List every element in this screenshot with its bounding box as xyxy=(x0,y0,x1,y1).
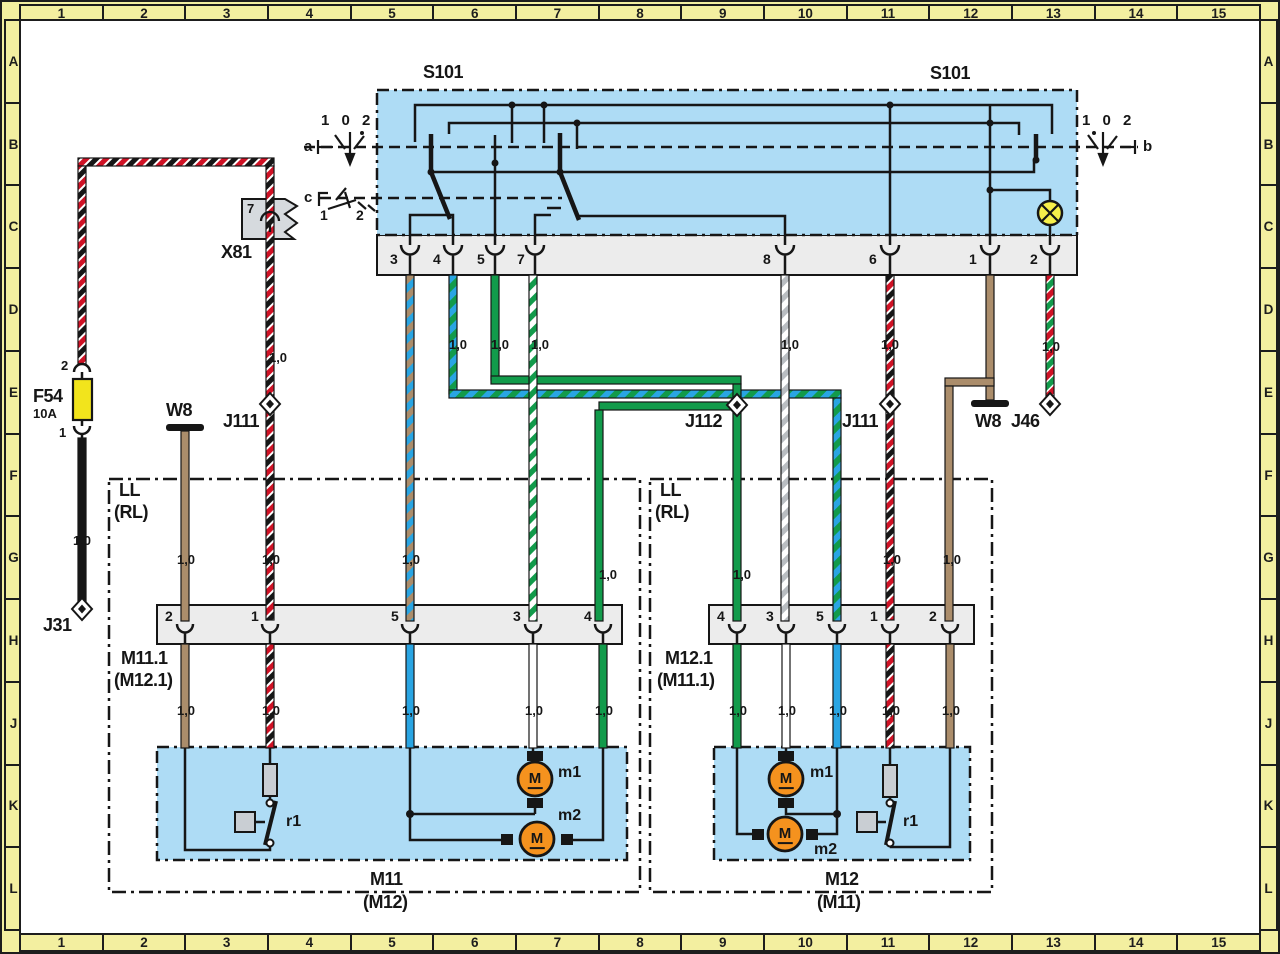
lamp-symbol xyxy=(1038,201,1062,225)
f54-label: F54 xyxy=(33,387,63,405)
right-strip-pin-2: 2 xyxy=(929,609,937,623)
j112-label: J112 xyxy=(685,412,722,430)
m1-left-motor-letter: M xyxy=(528,771,543,789)
w8-left-label: W8 xyxy=(166,401,192,419)
m12-1-label: M12.1 xyxy=(665,649,713,667)
wire-black-j31 xyxy=(78,438,86,602)
m2-right-label: m2 xyxy=(814,842,837,858)
wire-whitegray xyxy=(781,275,789,621)
gauge-label: 1,0 xyxy=(177,704,195,717)
wiring-diagram-page: 123456789101112131415 123456789101112131… xyxy=(0,0,1280,954)
gauge-label: 1,0 xyxy=(882,704,900,717)
m11-1-alt: (M12.1) xyxy=(114,671,173,689)
x81-label: X81 xyxy=(221,243,252,261)
f54-pin-1: 1 xyxy=(59,426,66,439)
gauge-label: 1,0 xyxy=(262,553,280,566)
ll-right-title: LL xyxy=(660,481,681,499)
m1-left-label: m1 xyxy=(558,765,581,781)
switch-c-pos1: 1 xyxy=(320,208,328,222)
gauge-label: 1,0 xyxy=(531,338,549,351)
m1-right-motor-letter: M xyxy=(779,771,794,789)
switch-b-label: b xyxy=(1143,139,1152,154)
j111-right-diamond xyxy=(880,393,900,415)
j46-label: J46 xyxy=(1011,412,1040,430)
s101-pin-6: 6 xyxy=(869,252,877,266)
j111-right-label: J111 xyxy=(842,412,878,430)
gauge-label: 1,0 xyxy=(595,704,613,717)
schematic-artwork xyxy=(2,2,1280,954)
right-strip-pin-1: 1 xyxy=(870,609,878,623)
s101-pin-3: 3 xyxy=(390,252,398,266)
ll-right-subtitle: (RL) xyxy=(655,503,689,521)
j31-label: J31 xyxy=(43,616,72,634)
m11-1-label: M11.1 xyxy=(121,649,168,667)
w8-right-label: W8 xyxy=(975,412,1001,430)
right-strip-pin-4: 4 xyxy=(717,609,725,623)
left-strip-pin-1: 1 xyxy=(251,609,259,623)
f54-rating: 10A xyxy=(33,407,57,420)
left-strip-pin-3: 3 xyxy=(513,609,521,623)
gauge-label: 1,0 xyxy=(733,568,751,581)
f54-fuse xyxy=(73,364,92,439)
j31-diamond xyxy=(72,598,92,620)
gauge-label: 1,0 xyxy=(729,704,747,717)
m11-label: M11 xyxy=(370,870,403,888)
s101-pin-1: 1 xyxy=(969,252,977,266)
s101-label-left: S101 xyxy=(423,63,463,81)
gauge-label: 1,0 xyxy=(449,338,467,351)
gauge-label: 1,0 xyxy=(829,704,847,717)
gauge-label: 1,0 xyxy=(402,704,420,717)
m2-right-motor-letter: M xyxy=(778,826,793,844)
ll-left-title: LL xyxy=(119,481,140,499)
m12-1-alt: (M11.1) xyxy=(657,671,715,689)
gauge-label: 1,0 xyxy=(599,568,617,581)
f54-pin-2: 2 xyxy=(61,359,68,372)
wire-blackred-top-run xyxy=(78,158,274,166)
left-strip-pin-4: 4 xyxy=(584,609,592,623)
m2-left-motor-letter: M xyxy=(530,831,545,849)
gauge-label: 1,0 xyxy=(402,553,420,566)
m1-right-label: m1 xyxy=(810,765,833,781)
switch-a-positions: 1 0 2 xyxy=(321,113,374,128)
ll-left-subtitle: (RL) xyxy=(114,503,148,521)
r1-left-label: r1 xyxy=(286,814,301,830)
left-strip-pin-5: 5 xyxy=(391,609,399,623)
wire-greenred xyxy=(1046,275,1054,396)
gauge-label: 1,0 xyxy=(269,351,287,364)
j111-left-label: J111 xyxy=(223,412,259,430)
m11-alt: (M12) xyxy=(363,893,408,911)
gauge-label: 1,0 xyxy=(881,338,899,351)
wire-whitegreen xyxy=(529,275,537,621)
pin-terminals xyxy=(177,245,1059,644)
gauge-label: 1,0 xyxy=(943,553,961,566)
wire-brownblue xyxy=(406,275,414,621)
m12-label: M12 xyxy=(825,870,859,888)
x81-pin: 7 xyxy=(247,202,254,215)
m2-left-label: m2 xyxy=(558,808,581,824)
switch-a-label: a xyxy=(304,139,312,154)
gauge-label: 1,0 xyxy=(73,534,91,547)
s101-switch-assembly xyxy=(377,90,1077,275)
m12-alt: (M11) xyxy=(817,893,861,911)
gauge-label: 1,0 xyxy=(1042,340,1060,353)
gauge-label: 1,0 xyxy=(525,704,543,717)
switch-c-pos2: 2 xyxy=(356,208,364,222)
switch-c-label: c xyxy=(304,190,312,205)
gauge-label: 1,0 xyxy=(262,704,280,717)
j111-left-diamond xyxy=(260,393,280,415)
left-strip-pin-2: 2 xyxy=(165,609,173,623)
gauge-label: 1,0 xyxy=(491,338,509,351)
s101-label-right: S101 xyxy=(930,64,970,82)
right-strip-pin-3: 3 xyxy=(766,609,774,623)
s101-pin-4: 4 xyxy=(433,252,441,266)
wire-green xyxy=(491,275,499,380)
right-strip-pin-5: 5 xyxy=(816,609,824,623)
gauge-label: 1,0 xyxy=(778,704,796,717)
wire-greenblue xyxy=(449,275,457,394)
s101-pin-2: 2 xyxy=(1030,252,1038,266)
gauge-label: 1,0 xyxy=(883,553,901,566)
gauge-label: 1,0 xyxy=(942,704,960,717)
gauge-label: 1,0 xyxy=(177,553,195,566)
connector-diamonds xyxy=(72,393,1060,620)
r1-right-label: r1 xyxy=(903,814,918,830)
j46-diamond xyxy=(1040,393,1060,415)
wire-blackred-pin6 xyxy=(886,275,894,620)
wire-brown-left xyxy=(181,431,189,621)
gauge-label: 1,0 xyxy=(781,338,799,351)
s101-pin-7: 7 xyxy=(517,252,525,266)
switch-b-positions: 1 0 2 xyxy=(1082,113,1135,128)
s101-pin-5: 5 xyxy=(477,252,485,266)
s101-pin-8: 8 xyxy=(763,252,771,266)
